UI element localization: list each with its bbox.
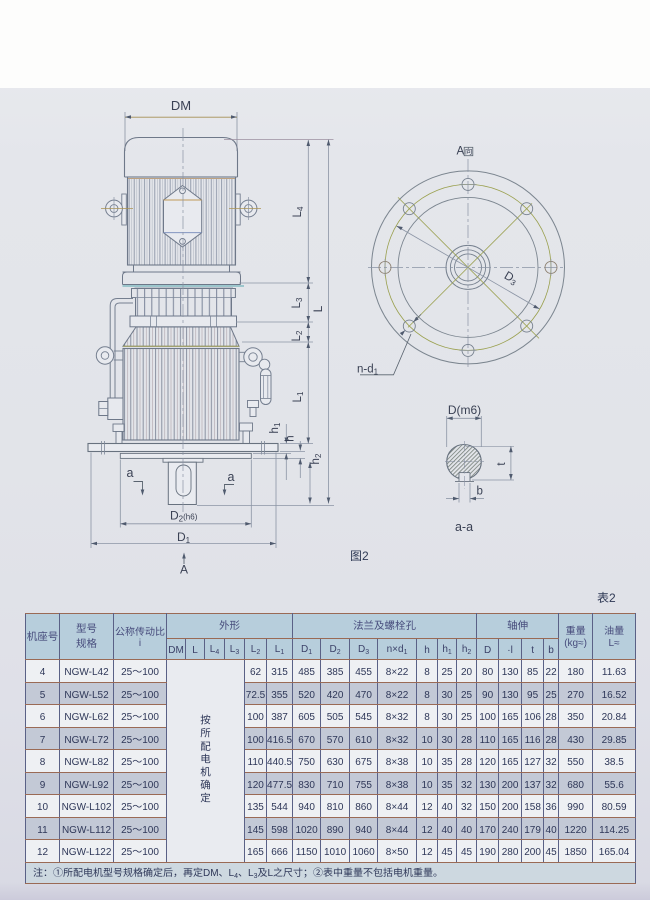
svg-text:h2: h2	[307, 453, 324, 464]
svg-text:a: a	[127, 462, 134, 481]
svg-text:L: L	[309, 305, 326, 312]
svg-text:t: t	[493, 462, 509, 466]
svg-text:D1: D1	[177, 528, 191, 546]
svg-text:a-a: a-a	[455, 516, 473, 535]
svg-text:b: b	[477, 483, 483, 499]
svg-text:表2: 表2	[597, 589, 616, 606]
svg-text:向: 向	[465, 146, 473, 157]
svg-text:L2: L2	[288, 330, 305, 341]
svg-text:DM: DM	[171, 95, 191, 114]
svg-text:L1: L1	[289, 391, 306, 402]
svg-text:图2: 图2	[350, 547, 369, 564]
svg-text:h1: h1	[266, 422, 283, 433]
svg-text:n-d1: n-d1	[357, 361, 379, 378]
svg-text:D(m6): D(m6)	[448, 401, 481, 418]
svg-text:h: h	[282, 435, 298, 441]
svg-text:D3: D3	[501, 266, 522, 288]
svg-text:a: a	[228, 466, 235, 485]
svg-text:L4: L4	[289, 206, 306, 217]
svg-text:A: A	[180, 561, 188, 578]
svg-text:A: A	[456, 143, 464, 159]
svg-text:L3: L3	[288, 297, 305, 308]
svg-text:D2(h6): D2(h6)	[170, 507, 198, 525]
